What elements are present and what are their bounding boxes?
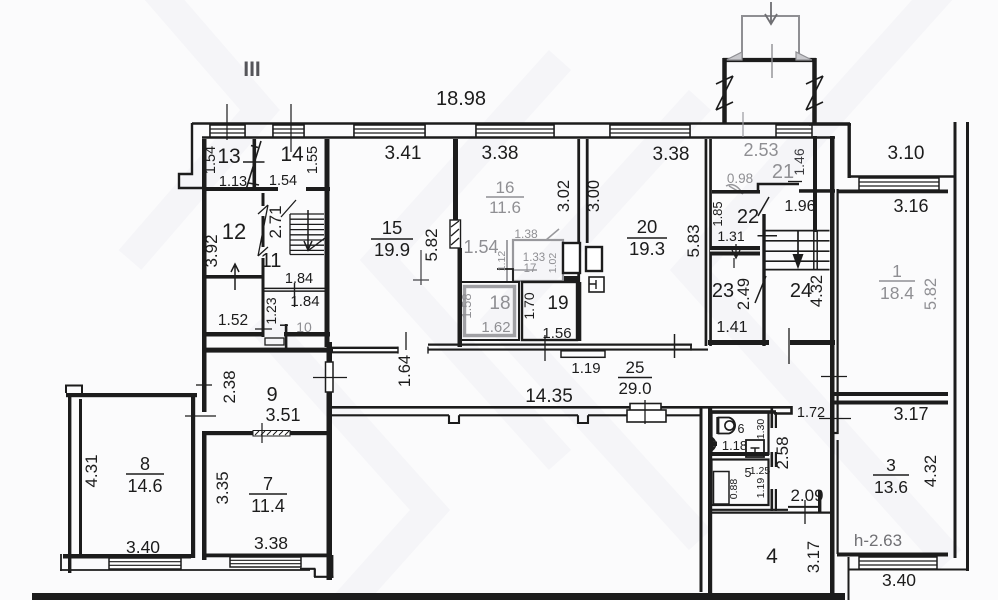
svg-text:1.64: 1.64	[396, 355, 414, 387]
svg-text:1.30: 1.30	[755, 419, 767, 440]
svg-text:7: 7	[263, 474, 273, 494]
svg-text:2.58: 2.58	[773, 436, 792, 469]
svg-text:4: 4	[766, 545, 778, 568]
svg-text:3.40: 3.40	[882, 570, 916, 590]
svg-text:1.31: 1.31	[717, 228, 744, 244]
svg-text:2.71: 2.71	[266, 205, 285, 238]
svg-text:1.18: 1.18	[722, 438, 747, 453]
svg-text:1.19: 1.19	[571, 360, 600, 377]
svg-text:6: 6	[738, 422, 745, 436]
svg-text:1.58: 1.58	[459, 293, 474, 318]
svg-text:18.98: 18.98	[436, 88, 486, 110]
svg-text:4.32: 4.32	[922, 455, 940, 487]
svg-text:1.62: 1.62	[481, 319, 510, 336]
svg-text:12: 12	[222, 219, 246, 244]
svg-text:8: 8	[140, 454, 150, 474]
svg-text:1.54: 1.54	[269, 173, 297, 189]
svg-text:1.84: 1.84	[285, 271, 313, 287]
svg-text:1.25: 1.25	[750, 465, 771, 477]
svg-text:1.13: 1.13	[219, 174, 247, 190]
svg-text:19: 19	[547, 293, 568, 314]
svg-text:11.4: 11.4	[251, 496, 285, 516]
svg-text:3.38: 3.38	[254, 533, 288, 553]
svg-text:1.41: 1.41	[716, 319, 747, 336]
svg-text:15: 15	[382, 217, 403, 238]
svg-text:5.82: 5.82	[422, 228, 441, 261]
svg-text:13.6: 13.6	[874, 477, 908, 497]
svg-text:11.6: 11.6	[489, 198, 521, 217]
svg-text:3.10: 3.10	[888, 143, 925, 164]
svg-text:1.96: 1.96	[784, 198, 815, 215]
svg-text:25: 25	[626, 358, 645, 377]
svg-text:1.85: 1.85	[710, 201, 725, 226]
svg-text:h-2.63: h-2.63	[854, 531, 902, 550]
svg-text:2.49: 2.49	[735, 278, 753, 310]
svg-text:9: 9	[266, 384, 277, 406]
svg-text:4.31: 4.31	[82, 454, 101, 487]
svg-text:1.19: 1.19	[755, 478, 767, 499]
svg-text:3.41: 3.41	[385, 143, 422, 164]
svg-text:22: 22	[737, 206, 759, 228]
svg-text:5.83: 5.83	[684, 224, 703, 257]
svg-text:1.54: 1.54	[463, 237, 498, 257]
svg-text:III: III	[243, 58, 261, 81]
svg-text:10: 10	[296, 319, 312, 335]
svg-text:3.17: 3.17	[893, 404, 928, 424]
svg-text:5.82: 5.82	[922, 278, 940, 310]
svg-text:23: 23	[712, 280, 734, 302]
svg-text:1.70: 1.70	[521, 292, 537, 319]
svg-text:29.0: 29.0	[618, 379, 651, 398]
svg-text:14: 14	[280, 143, 304, 166]
svg-text:1.12: 1.12	[496, 251, 508, 272]
svg-text:11: 11	[261, 250, 282, 272]
svg-text:1.54: 1.54	[203, 146, 219, 174]
svg-text:1.46: 1.46	[791, 148, 807, 175]
svg-text:3.51: 3.51	[265, 405, 300, 425]
svg-text:3.38: 3.38	[653, 144, 690, 165]
svg-text:0.98: 0.98	[727, 171, 753, 186]
svg-text:1.38: 1.38	[514, 227, 538, 241]
svg-text:3.02: 3.02	[555, 180, 573, 212]
svg-text:4.32: 4.32	[808, 275, 826, 307]
svg-text:3: 3	[886, 455, 896, 475]
svg-text:3.35: 3.35	[213, 471, 232, 504]
svg-text:17: 17	[524, 263, 537, 275]
svg-text:0.88: 0.88	[728, 479, 740, 500]
svg-text:2.53: 2.53	[743, 140, 778, 160]
svg-text:19.9: 19.9	[374, 239, 410, 260]
svg-text:13: 13	[217, 145, 240, 168]
svg-text:3.17: 3.17	[805, 541, 823, 573]
svg-text:18: 18	[489, 293, 510, 314]
svg-text:1.84: 1.84	[290, 293, 319, 310]
svg-text:19.3: 19.3	[629, 238, 665, 259]
svg-text:3.92: 3.92	[202, 234, 221, 267]
svg-text:18.4: 18.4	[880, 283, 914, 303]
svg-text:1.52: 1.52	[218, 312, 248, 329]
svg-text:3.38: 3.38	[482, 143, 519, 164]
svg-text:1: 1	[892, 261, 902, 281]
svg-text:1.55: 1.55	[305, 146, 321, 174]
svg-text:1.02: 1.02	[547, 253, 559, 274]
svg-text:1.56: 1.56	[542, 325, 571, 342]
svg-text:14.6: 14.6	[127, 476, 162, 496]
svg-text:3.16: 3.16	[893, 196, 928, 216]
svg-text:1.23: 1.23	[263, 297, 279, 324]
svg-text:14.35: 14.35	[525, 386, 573, 407]
svg-text:2.38: 2.38	[220, 370, 239, 403]
svg-text:20: 20	[637, 216, 658, 237]
svg-text:16: 16	[496, 178, 515, 197]
